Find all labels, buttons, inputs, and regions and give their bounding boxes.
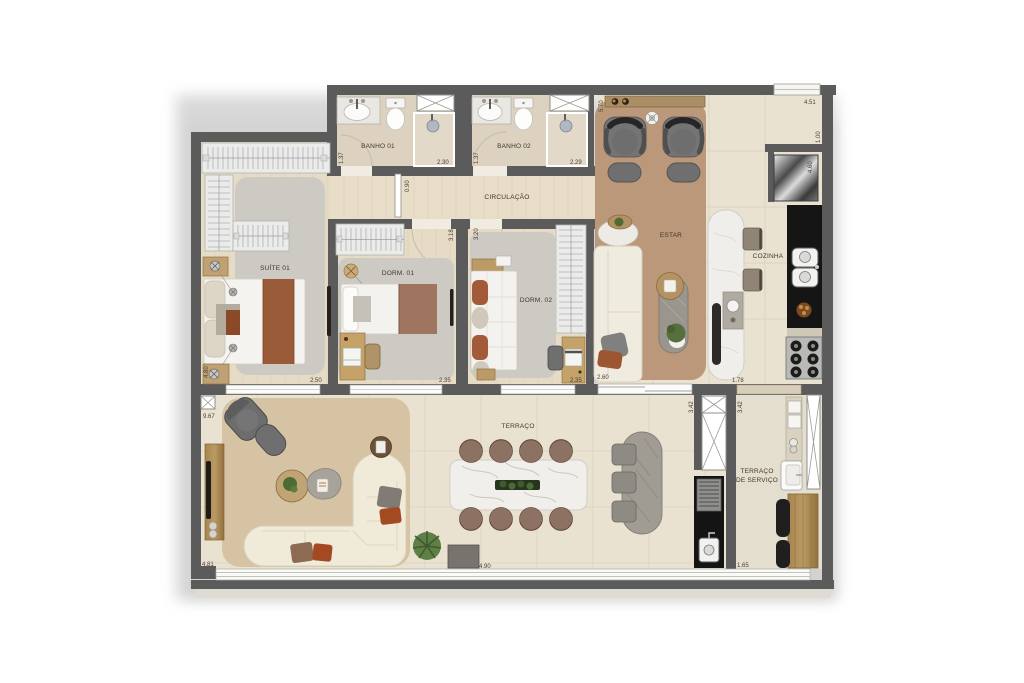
svg-text:5.70: 5.70 xyxy=(599,100,605,112)
svg-text:1.00: 1.00 xyxy=(816,131,822,143)
svg-text:DE SERVIÇO: DE SERVIÇO xyxy=(736,477,778,484)
svg-text:1.78: 1.78 xyxy=(732,378,744,384)
svg-text:DORM. 01: DORM. 01 xyxy=(382,270,414,277)
svg-text:BANHO 02: BANHO 02 xyxy=(497,143,531,150)
svg-text:BANHO 01: BANHO 01 xyxy=(361,143,395,150)
svg-text:ESTAR: ESTAR xyxy=(660,232,682,239)
svg-text:4.60: 4.60 xyxy=(808,161,814,173)
svg-text:1.37: 1.37 xyxy=(339,152,345,164)
svg-text:3.18: 3.18 xyxy=(449,229,455,241)
svg-text:CIRCULAÇÃO: CIRCULAÇÃO xyxy=(484,192,529,201)
svg-text:2.29: 2.29 xyxy=(570,160,582,166)
svg-text:TERRAÇO: TERRAÇO xyxy=(740,468,773,475)
svg-text:3.20: 3.20 xyxy=(474,228,480,240)
svg-text:2.60: 2.60 xyxy=(597,375,609,381)
svg-text:2.30: 2.30 xyxy=(437,160,449,166)
svg-text:2.35: 2.35 xyxy=(570,378,582,384)
svg-text:4.81: 4.81 xyxy=(202,562,214,568)
svg-text:TERRAÇO: TERRAÇO xyxy=(501,423,534,430)
svg-text:COZINHA: COZINHA xyxy=(753,253,784,260)
svg-text:4.51: 4.51 xyxy=(804,100,816,106)
svg-text:DORM. 02: DORM. 02 xyxy=(520,297,552,304)
svg-text:1.65: 1.65 xyxy=(737,563,749,569)
svg-text:2.35: 2.35 xyxy=(439,378,451,384)
svg-text:3.42: 3.42 xyxy=(738,401,744,413)
svg-text:9.67: 9.67 xyxy=(203,414,215,420)
svg-text:4.90: 4.90 xyxy=(479,564,491,570)
svg-text:SUÍTE 01: SUÍTE 01 xyxy=(260,263,290,272)
svg-text:3.42: 3.42 xyxy=(689,401,695,413)
svg-text:4.80: 4.80 xyxy=(204,366,210,378)
svg-text:0.90: 0.90 xyxy=(405,180,411,192)
svg-text:2.50: 2.50 xyxy=(310,378,322,384)
svg-text:1.37: 1.37 xyxy=(474,152,480,164)
